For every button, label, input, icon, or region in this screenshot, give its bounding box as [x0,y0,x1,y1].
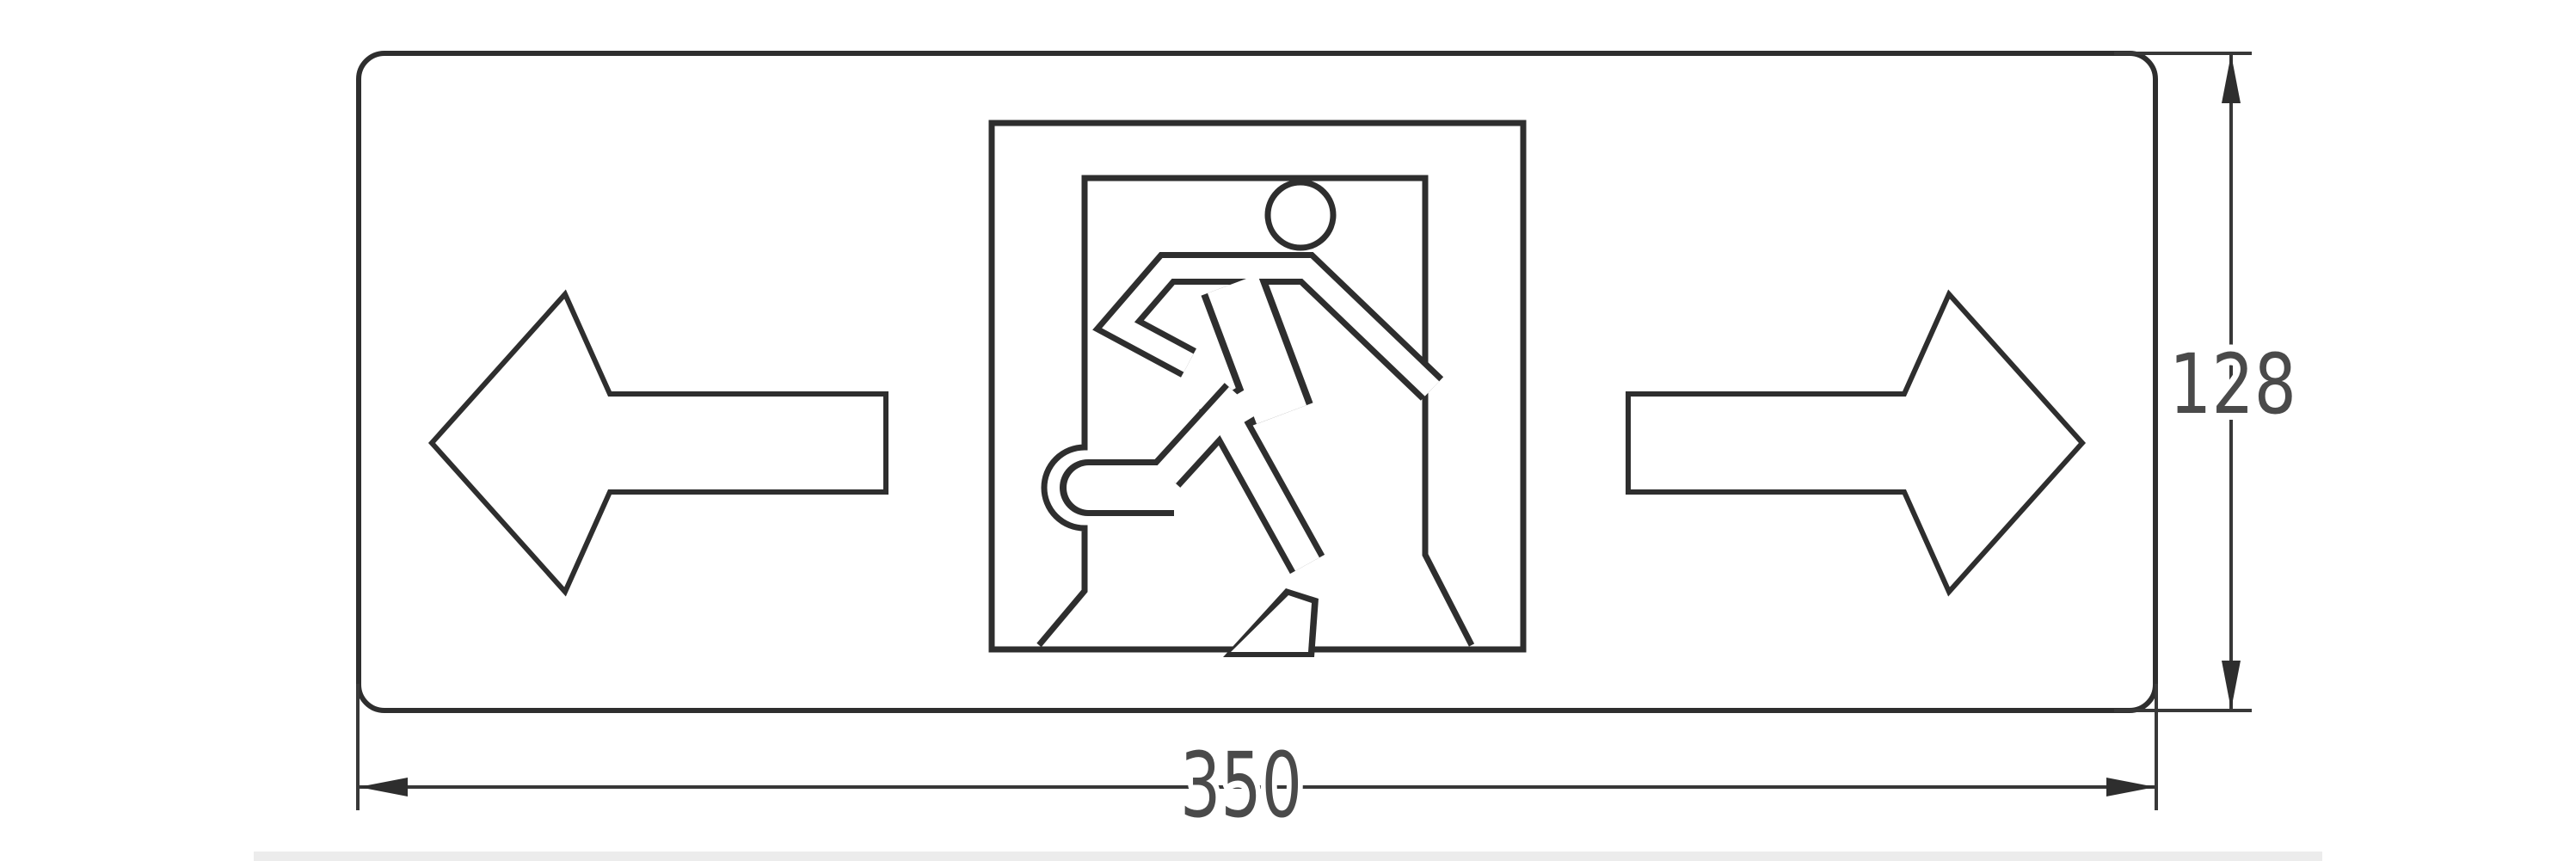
height-dimension-label: 128 [2169,336,2296,433]
dimension-arrowhead-right [2106,778,2155,796]
dimension-arrowhead-left [359,778,408,796]
running-man-exit-door-icon [992,123,1523,657]
dimension-arrowhead-up [2222,54,2241,103]
baseline-rule [254,852,2322,861]
running-man-head [1268,182,1333,248]
technical-drawing-canvas: 128 350 [0,0,2576,861]
width-dimension-label: 350 [1180,733,1302,838]
height-dimension: 128 [2114,53,2296,710]
left-arrow-icon [432,294,886,592]
dimension-arrowhead-down [2222,661,2241,710]
front-foot-core [1231,595,1312,652]
running-man-figure [1060,182,1432,657]
back-foot-core [1067,465,1174,510]
right-arrow-icon [1628,294,2082,592]
exit-sign-technical-drawing: 128 350 [0,0,2576,861]
width-dimension: 350 [358,684,2156,838]
